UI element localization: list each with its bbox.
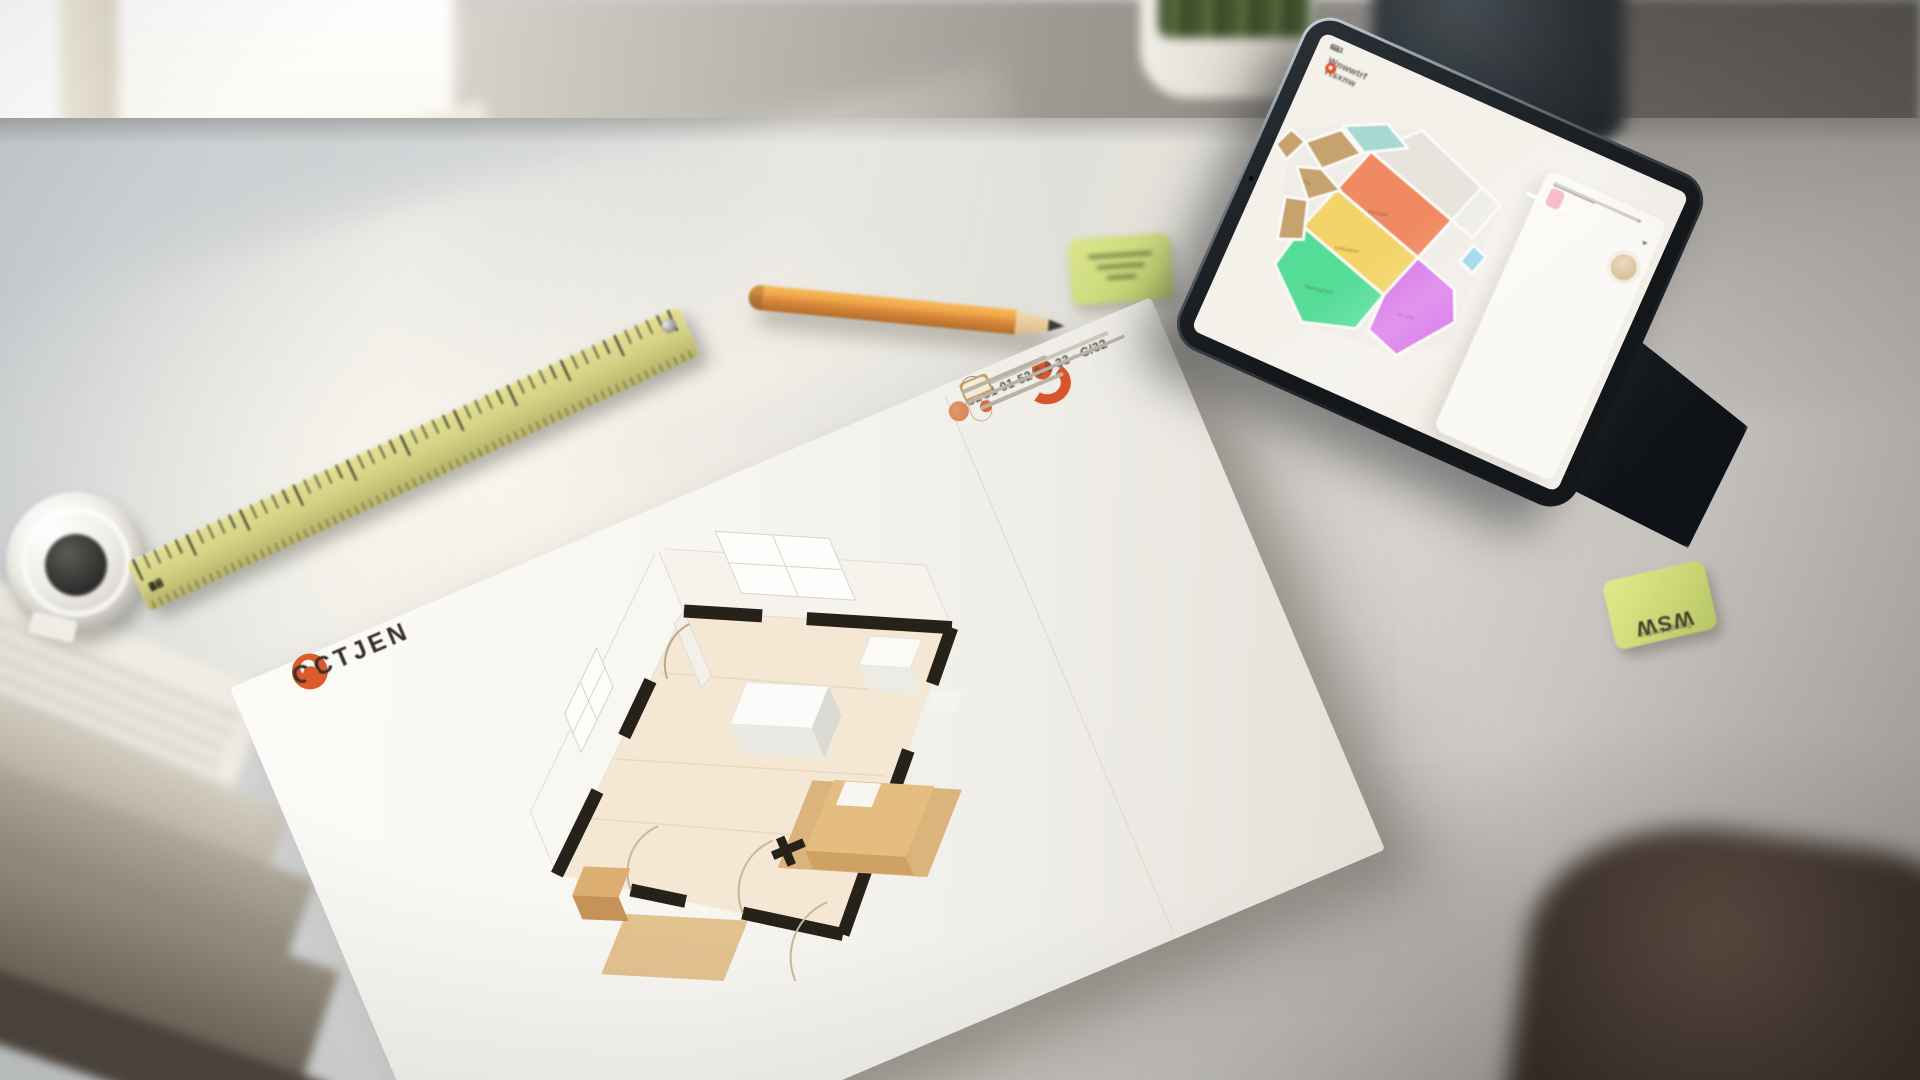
thumbnail-avatar[interactable]	[1607, 250, 1641, 284]
desk-scene: 0 2 5 8 10 12 15 18 20 23 OCTJEN	[0, 0, 1920, 1080]
handwriting-scribble	[1097, 262, 1145, 269]
pencil-sharpened-wood	[1014, 310, 1052, 338]
pencil-graphite-tip	[1048, 319, 1065, 332]
sticky-note-top	[1068, 233, 1174, 306]
ruler-number: 23	[146, 575, 165, 595]
handwriting-scribble	[1088, 251, 1152, 259]
chevron-down-icon[interactable]	[1641, 240, 1648, 246]
front-camera-icon	[1248, 175, 1255, 182]
app-header: Wnwwtrf Ttsxnw	[1322, 57, 1329, 73]
green-plant	[1158, 0, 1310, 38]
tape-measure-center	[45, 534, 107, 596]
sticky-note-writing: WSW Tatnpkdnnfca	[1608, 566, 1712, 644]
margin-rule-lines	[319, 792, 420, 835]
battery-icon	[1329, 43, 1342, 53]
tape-measure	[6, 492, 146, 632]
handwriting-scribble	[1106, 274, 1136, 280]
